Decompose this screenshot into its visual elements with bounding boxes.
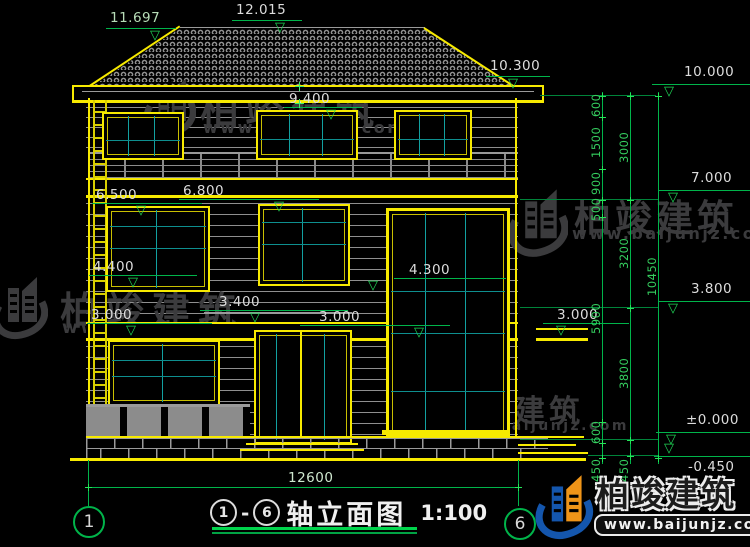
- dim-tick: [627, 197, 634, 204]
- elev-line: [232, 20, 302, 21]
- elevation-marker-icon: [414, 326, 424, 339]
- roof-ridge-line: [180, 27, 425, 28]
- elev-line: [106, 28, 176, 29]
- elev-sill-2f: 4.400: [93, 259, 134, 275]
- watermark-url: www.baijunjz.com: [572, 224, 750, 243]
- wall-right-edge: [515, 98, 517, 437]
- window-mullion: [162, 344, 163, 402]
- dim-tick: [599, 114, 606, 121]
- window-2f-middle: [258, 204, 350, 286]
- elev-right-gf: ±0.000: [686, 412, 739, 428]
- elevation-marker-icon: [128, 276, 138, 289]
- wall-left-edge: [88, 98, 90, 437]
- title-underline: [212, 532, 417, 534]
- window-mullion: [289, 114, 290, 156]
- snap-cross: [295, 82, 304, 91]
- elev-line: [92, 203, 202, 204]
- window-1f-left: [108, 340, 220, 406]
- door-glazing-line: [324, 334, 325, 440]
- window-transom: [112, 360, 216, 361]
- dim-tick: [627, 93, 634, 100]
- elev-line: [87, 323, 212, 324]
- dim-tick: [655, 93, 662, 100]
- window-inner-frame: [392, 214, 504, 432]
- window-transom: [391, 291, 505, 292]
- side-step: [518, 444, 576, 446]
- dim-tick: [599, 93, 606, 100]
- window-transom: [110, 226, 206, 227]
- elevation-marker-icon: [326, 108, 336, 121]
- elevation-marker-icon: [150, 29, 160, 42]
- window-inner-frame: [261, 115, 353, 155]
- elev-ridge-minor: 11.697: [110, 10, 160, 26]
- axis-bubble-1: 1: [73, 506, 105, 538]
- window-mullion: [425, 213, 426, 433]
- window-transom: [106, 140, 180, 141]
- side-step: [518, 452, 588, 454]
- door-step: [240, 449, 364, 451]
- window-inner-frame: [113, 345, 215, 401]
- snap-cross: [295, 99, 304, 108]
- elevation-marker-icon: [664, 85, 674, 98]
- window-mullion: [444, 114, 445, 156]
- brand-logo-url: www.baijunjz.com: [594, 514, 750, 536]
- elev-rail-upper: 6.800: [183, 183, 224, 199]
- title-axis-to: 6: [253, 499, 280, 526]
- dim-tick: [627, 437, 634, 444]
- window-mullion: [419, 114, 420, 156]
- title-axis-from: 1: [210, 499, 237, 526]
- elev-right-eave: 10.000: [684, 64, 734, 80]
- cad-elevation-drawing: 柏竣建筑 www.baijunjz.com 柏竣建筑 www.baijunjz.…: [0, 0, 750, 547]
- window-mullion: [154, 116, 155, 156]
- porch-railing-panels: [86, 404, 250, 439]
- window-mullion: [302, 208, 303, 282]
- elev-line: [394, 278, 506, 279]
- elev-right-3f: 7.000: [691, 170, 732, 186]
- elev-floor-2f-left: 3.000: [91, 307, 132, 323]
- elevation-marker-icon: [274, 200, 284, 213]
- bottom-dim-value: 12600: [288, 470, 333, 486]
- window-transom: [260, 139, 354, 140]
- elevation-marker-icon: [668, 302, 678, 315]
- elev-line: [300, 325, 450, 326]
- brand-logo-icon: [528, 470, 594, 542]
- window-mullion: [156, 210, 157, 288]
- elevation-marker-icon: [664, 442, 674, 455]
- elev-floor-2f-mid: 3.000: [319, 309, 360, 325]
- elevation-marker-icon: [136, 204, 146, 217]
- elev-eave-top: 10.300: [490, 58, 540, 74]
- side-step: [518, 436, 584, 438]
- window-transom: [391, 333, 505, 334]
- window-inner-frame: [399, 115, 467, 155]
- window-mullion: [322, 114, 323, 156]
- floor-slab-3f: [86, 178, 518, 198]
- window-3f-right: [394, 110, 472, 160]
- window-transom: [398, 139, 468, 140]
- window-transom: [112, 376, 216, 377]
- dim-value: 3000: [617, 132, 631, 163]
- dim-tick: [599, 455, 606, 462]
- window-inner-frame: [263, 209, 345, 281]
- dim-tick: [515, 484, 522, 491]
- elevation-marker-icon: [126, 324, 136, 337]
- window-transom: [262, 222, 346, 223]
- elev-line: [654, 456, 750, 457]
- stairwell-sill-band: [382, 430, 508, 435]
- window-3f-left: [102, 112, 184, 160]
- entry-door: [254, 330, 352, 444]
- dim-value: 1500: [589, 127, 603, 158]
- door-glazing-line: [276, 334, 277, 440]
- dim-tick: [599, 166, 606, 173]
- door-inner-frame: [259, 335, 347, 439]
- window-3f-middle: [256, 110, 358, 160]
- dim-value: 900: [589, 172, 603, 195]
- window-inner-frame: [107, 117, 179, 155]
- dim-tick: [599, 197, 606, 204]
- elevation-marker-icon: [556, 324, 566, 337]
- elevation-marker-icon: [508, 77, 518, 90]
- elevation-marker-icon: [668, 191, 678, 204]
- elev-right-2f: 3.800: [691, 281, 732, 297]
- elev-line: [179, 199, 319, 200]
- dim-value: 3200: [617, 238, 631, 269]
- dim-tick: [599, 419, 606, 426]
- elevation-marker-icon: [368, 279, 378, 292]
- dim-tick: [627, 305, 634, 312]
- window-mullion: [465, 213, 466, 433]
- window-mullion: [128, 116, 129, 156]
- window-2f-left: [106, 206, 210, 292]
- dim-tick: [85, 484, 92, 491]
- elevation-marker-icon: [275, 21, 285, 34]
- elev-stair-window: 4.300: [409, 262, 450, 278]
- window-transom: [262, 244, 346, 245]
- title-underline: [212, 527, 417, 530]
- watermark-logo-icon: [0, 272, 48, 342]
- axis-leader-right: [518, 460, 519, 506]
- window-transom: [110, 248, 206, 249]
- dim-tick: [599, 440, 606, 447]
- dim-tick: [655, 455, 662, 462]
- window-transom: [391, 391, 505, 392]
- dim-value: 3800: [617, 358, 631, 389]
- title-scale: 1:100: [420, 501, 487, 525]
- elev-ledge-2f: 3.400: [219, 294, 260, 310]
- elev-line: [89, 275, 197, 276]
- ground-line: [70, 458, 586, 461]
- elev-line: [486, 76, 550, 77]
- dim-tick: [599, 214, 606, 221]
- elevation-marker-icon: [250, 311, 260, 324]
- title-dash: -: [241, 501, 249, 525]
- brand-logo-text: 柏竣建筑: [596, 468, 736, 516]
- dim-value: 10450: [645, 257, 659, 296]
- axis-leader-left: [88, 460, 89, 506]
- dim-tick: [627, 453, 634, 460]
- dim-value: 5900: [589, 303, 603, 334]
- elev-ridge-main: 12.015: [236, 2, 286, 18]
- door-center-split: [300, 332, 302, 438]
- bottom-dim-line: [88, 487, 518, 488]
- stairwell-window: [386, 208, 510, 438]
- door-step: [246, 443, 358, 445]
- elev-balcony-upper: 6.500: [96, 187, 137, 203]
